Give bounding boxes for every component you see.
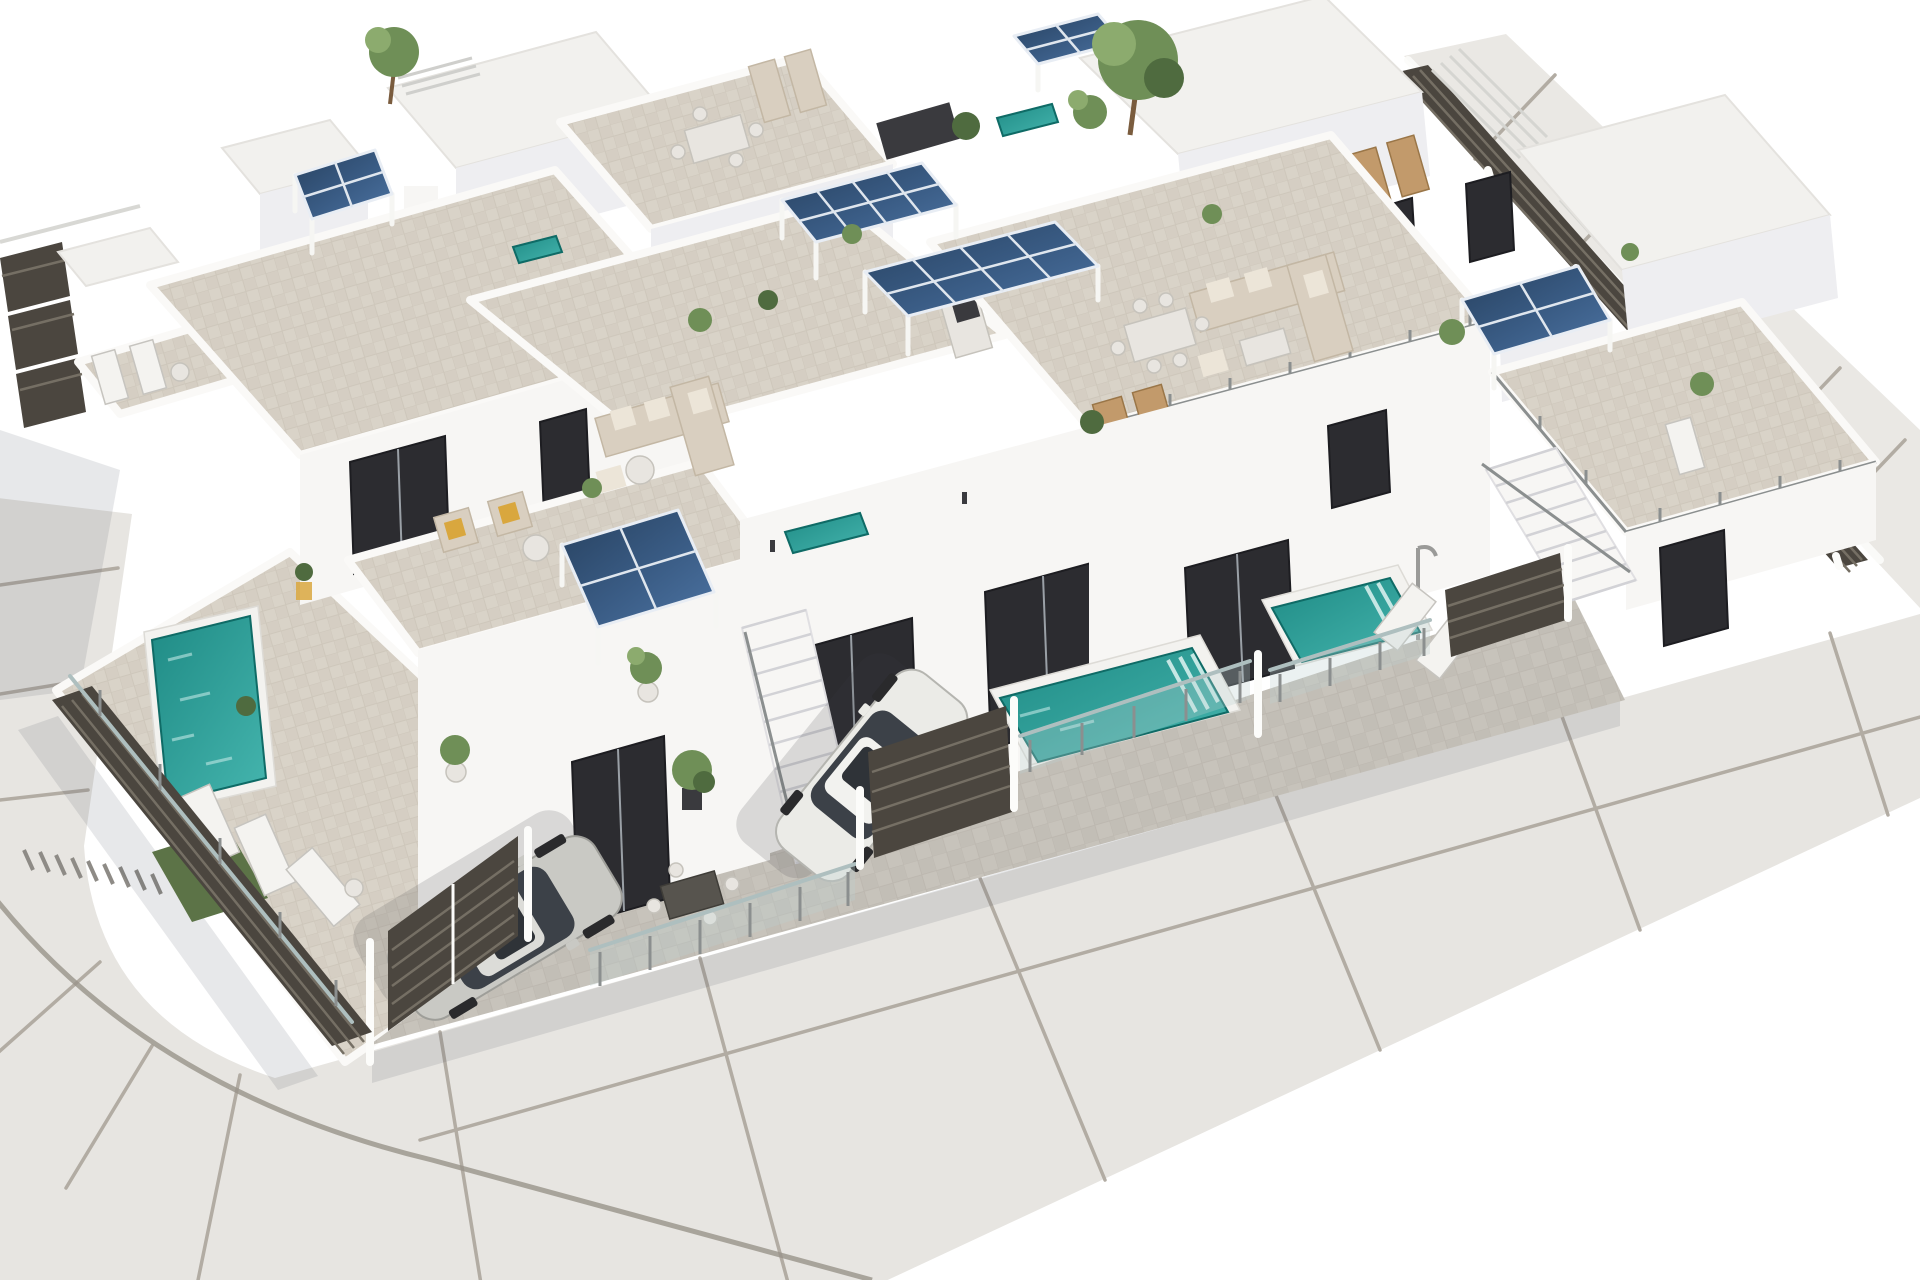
door <box>1466 172 1514 262</box>
villa-development-render: Aerial 3D render of a modern white villa… <box>0 0 1920 1280</box>
door <box>1660 530 1728 646</box>
wall-lamp <box>770 540 775 552</box>
potted-plant <box>582 478 602 498</box>
render-image: Aerial 3D render of a modern white villa… <box>0 0 1920 1280</box>
roof-louvre-screen <box>876 102 960 159</box>
door <box>1328 410 1390 508</box>
potted-plant <box>236 696 256 716</box>
wall-lamp <box>962 492 967 504</box>
